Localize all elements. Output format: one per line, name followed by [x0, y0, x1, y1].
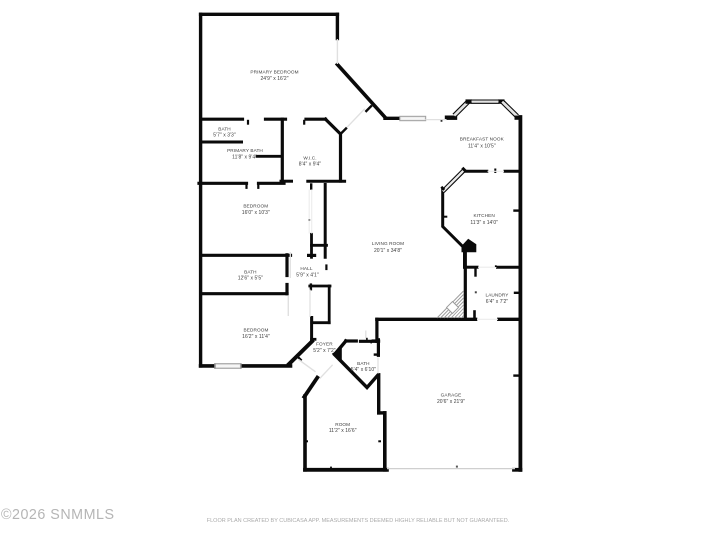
svg-text:ROOM: ROOM: [335, 422, 350, 427]
svg-text:KITCHEN: KITCHEN: [474, 213, 495, 218]
svg-text:5'9" x 4'1": 5'9" x 4'1": [296, 272, 319, 278]
svg-text:16'2" x 11'4": 16'2" x 11'4": [242, 334, 270, 340]
svg-text:8'4" x 9'4": 8'4" x 9'4": [299, 162, 322, 168]
svg-text:LIVING ROOM: LIVING ROOM: [372, 241, 404, 246]
svg-text:HALL: HALL: [300, 266, 312, 271]
svg-text:PRIMARY BEDROOM: PRIMARY BEDROOM: [250, 70, 298, 75]
svg-text:12'6" x 5'5": 12'6" x 5'5": [238, 276, 263, 282]
svg-text:5'4" x 6'10": 5'4" x 6'10": [351, 367, 376, 373]
svg-text:24'9" x 16'2": 24'9" x 16'2": [260, 76, 288, 82]
svg-text:FOYER: FOYER: [316, 342, 333, 347]
svg-text:5'2" x 7'2": 5'2" x 7'2": [313, 348, 336, 354]
svg-text:FLOOR PLAN CREATED BY CUBICASA: FLOOR PLAN CREATED BY CUBICASA APP. MEAS…: [207, 518, 510, 524]
svg-text:BEDROOM: BEDROOM: [243, 203, 268, 208]
svg-text:LAUNDRY: LAUNDRY: [485, 293, 509, 298]
svg-text:11'4" x 10'5": 11'4" x 10'5": [468, 143, 496, 149]
svg-text:BATH: BATH: [218, 126, 231, 131]
svg-text:BREAKFAST NOOK: BREAKFAST NOOK: [460, 137, 505, 142]
svg-text:GARAGE: GARAGE: [441, 393, 462, 398]
svg-text:BATH: BATH: [357, 361, 370, 366]
svg-text:BEDROOM: BEDROOM: [244, 328, 269, 333]
svg-text:W.I.C.: W.I.C.: [303, 156, 316, 161]
svg-text:5'7" x 3'3": 5'7" x 3'3": [213, 132, 236, 138]
svg-text:BATH: BATH: [244, 269, 257, 274]
svg-text:©2026 SNMMLS: ©2026 SNMMLS: [1, 507, 114, 523]
svg-text:20'1" x 34'8": 20'1" x 34'8": [374, 248, 402, 254]
svg-text:6'4" x 7'2": 6'4" x 7'2": [486, 299, 509, 305]
svg-text:11'8" x 9'4": 11'8" x 9'4": [232, 154, 257, 160]
svg-text:11'3" x 14'0": 11'3" x 14'0": [470, 220, 498, 226]
svg-text:20'6" x 21'9": 20'6" x 21'9": [437, 399, 465, 405]
svg-text:11'2" x 16'6": 11'2" x 16'6": [329, 428, 357, 434]
svg-text:16'0" x 10'3": 16'0" x 10'3": [242, 210, 270, 216]
svg-text:PRIMARY BATH: PRIMARY BATH: [227, 148, 263, 153]
